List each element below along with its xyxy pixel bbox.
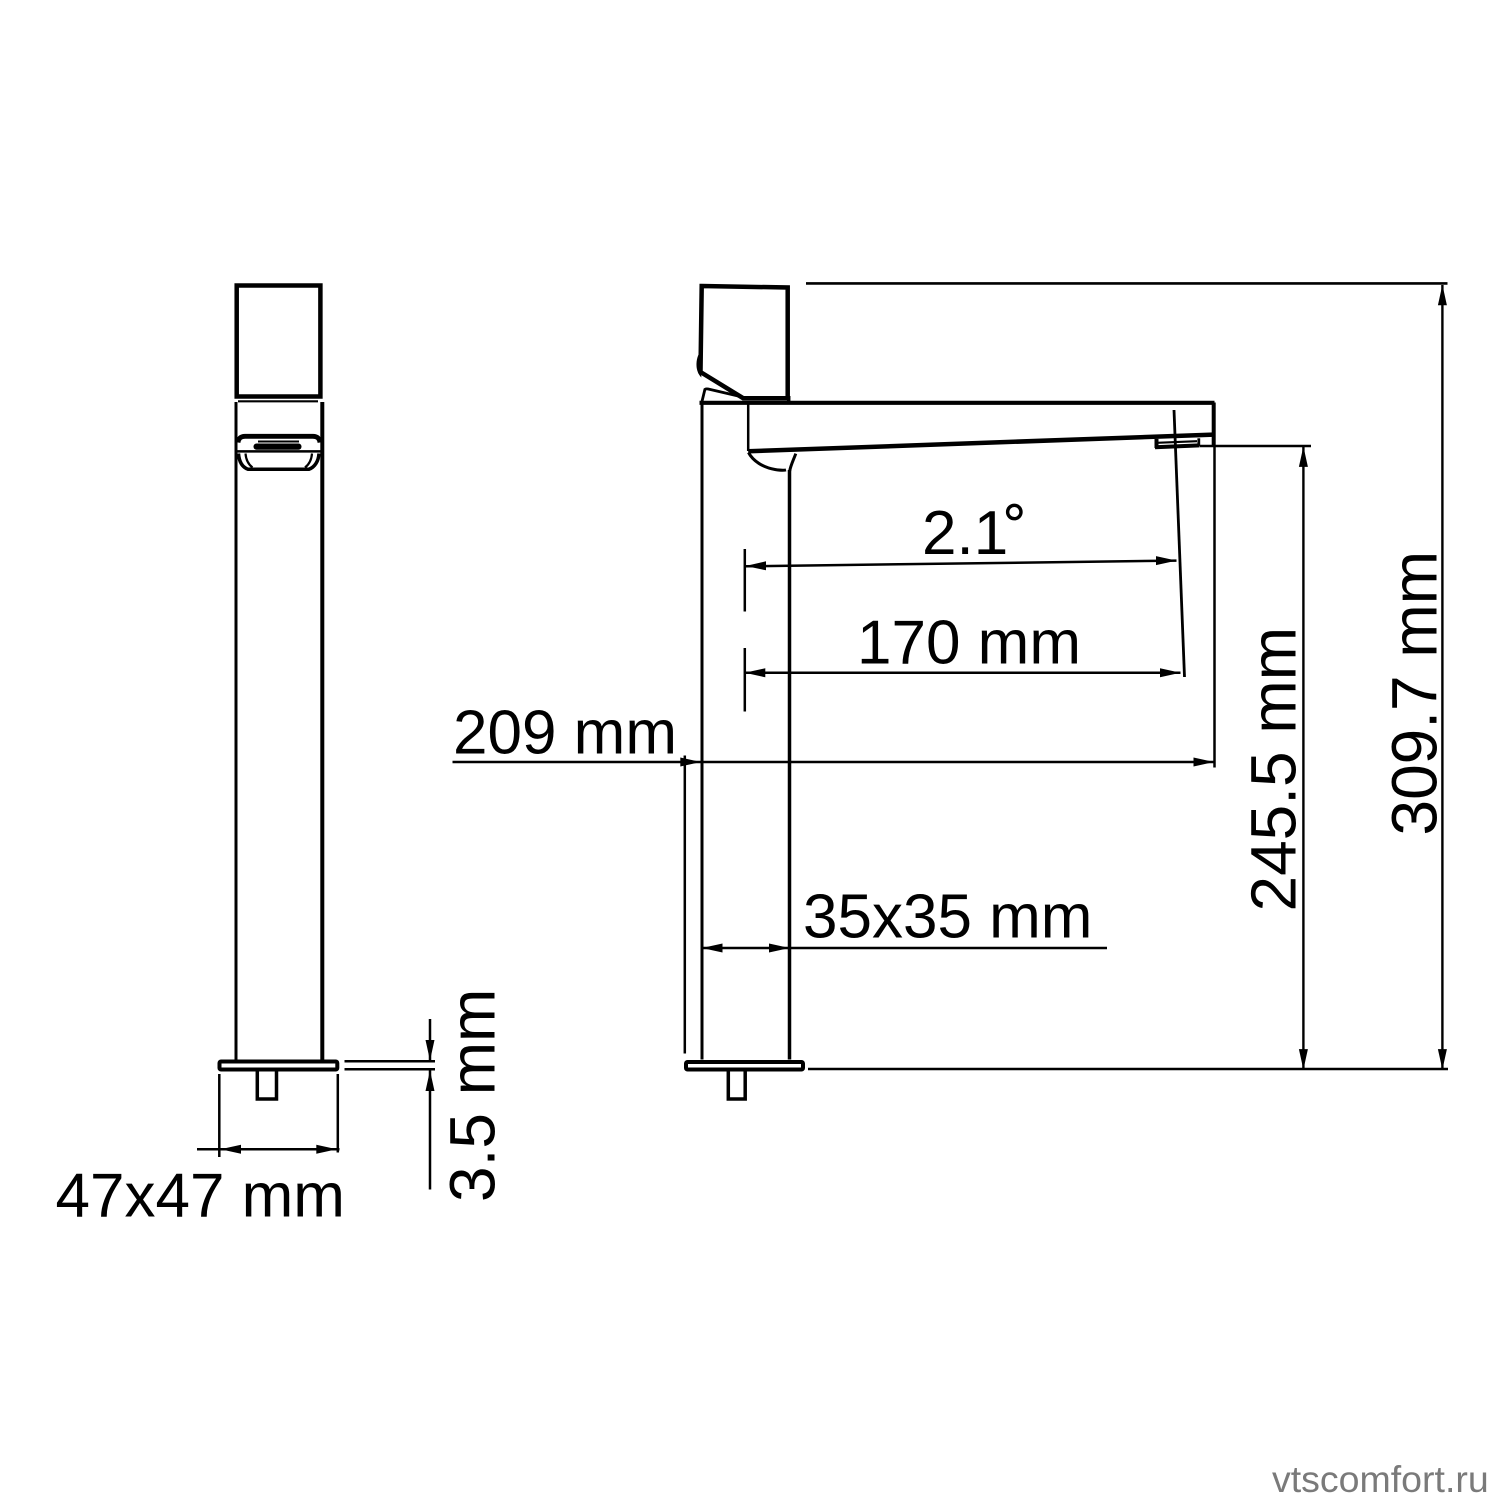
svg-text:2.1: 2.1 [922, 499, 1008, 568]
svg-text:245.5 mm: 245.5 mm [1238, 627, 1310, 912]
svg-text:vtscomfort.ru: vtscomfort.ru [1272, 1458, 1489, 1500]
svg-text:209 mm: 209 mm [453, 698, 677, 767]
svg-text:3.5 mm: 3.5 mm [437, 989, 509, 1202]
svg-text:47x47 mm: 47x47 mm [56, 1162, 345, 1231]
svg-text:35x35 mm: 35x35 mm [803, 883, 1092, 952]
svg-text:170 mm: 170 mm [857, 609, 1081, 678]
svg-text:309.7 mm: 309.7 mm [1379, 551, 1451, 836]
